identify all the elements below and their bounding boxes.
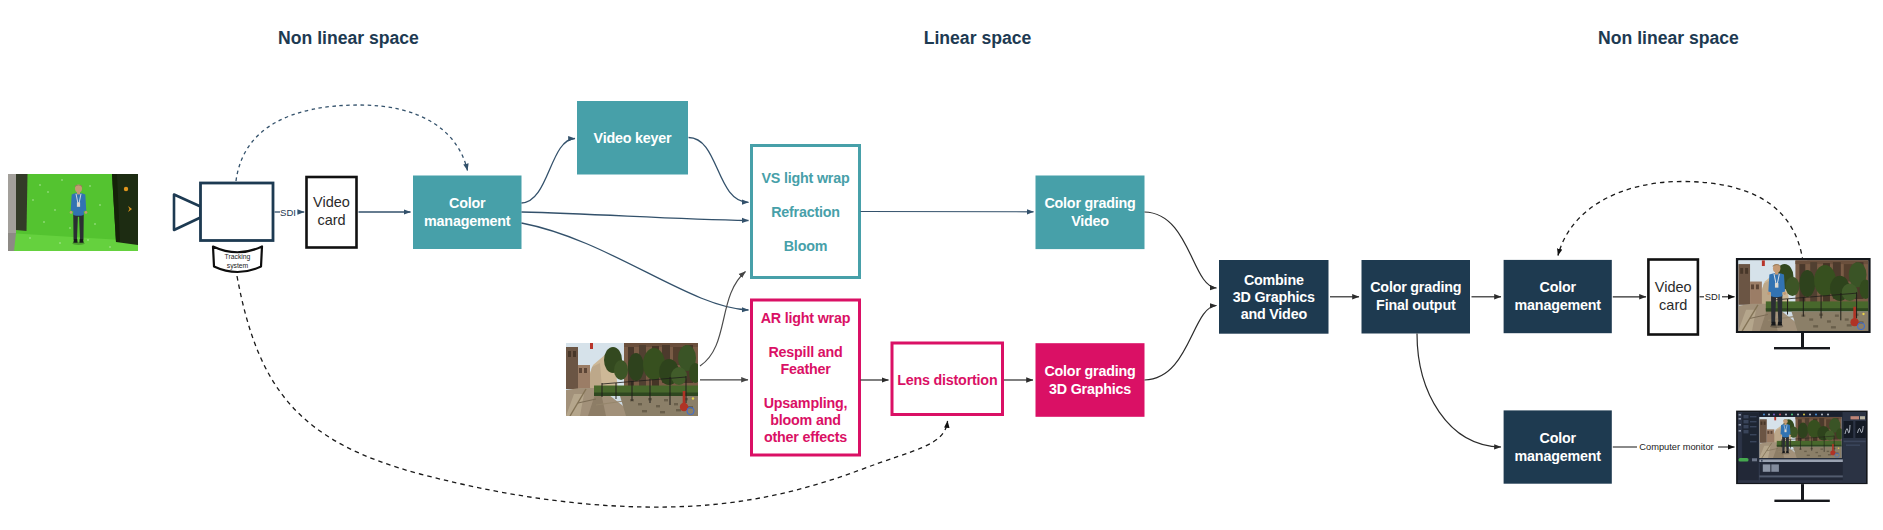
svg-text:management: management [424,213,511,229]
svg-text:card: card [1659,297,1687,313]
svg-text:other effects: other effects [764,429,847,445]
svg-text:Upsampling,: Upsampling, [764,395,848,411]
svg-text:card: card [317,212,345,228]
svg-text:Non linear space: Non linear space [278,28,419,48]
svg-text:SDI: SDI [1705,292,1721,302]
svg-text:Color grading: Color grading [1044,195,1135,211]
svg-text:Video: Video [1071,213,1109,229]
svg-text:VS light wrap: VS light wrap [762,170,850,186]
svg-text:Color grading: Color grading [1370,279,1461,295]
svg-text:3D Graphics: 3D Graphics [1049,381,1131,397]
svg-text:Linear space: Linear space [924,28,1032,48]
svg-text:Combine: Combine [1244,272,1304,288]
svg-text:Color: Color [1540,279,1577,295]
svg-text:management: management [1515,448,1602,464]
svg-text:Video: Video [1655,279,1692,295]
svg-text:Feather: Feather [780,361,831,377]
svg-text:Tracking: Tracking [225,253,251,261]
svg-text:Respill and: Respill and [768,344,842,360]
svg-text:Final output: Final output [1376,297,1456,313]
svg-text:AR light wrap: AR light wrap [761,310,851,326]
svg-text:Video: Video [313,194,350,210]
svg-text:3D Graphics: 3D Graphics [1233,289,1315,305]
svg-text:Color grading: Color grading [1044,363,1135,379]
svg-text:Lens distortion: Lens distortion [897,372,997,388]
svg-text:management: management [1515,297,1602,313]
svg-text:Non linear space: Non linear space [1598,28,1739,48]
svg-text:Video keyer: Video keyer [594,130,672,146]
svg-text:system: system [227,262,249,270]
svg-text:Bloom: Bloom [784,238,827,254]
svg-text:Refraction: Refraction [771,204,840,220]
svg-text:Color: Color [1540,430,1577,446]
svg-text:bloom and: bloom and [770,412,840,428]
svg-text:and Video: and Video [1241,306,1308,322]
svg-text:Color: Color [449,195,486,211]
svg-text:SDI: SDI [280,207,296,218]
svg-text:Computer monitor: Computer monitor [1639,442,1713,452]
